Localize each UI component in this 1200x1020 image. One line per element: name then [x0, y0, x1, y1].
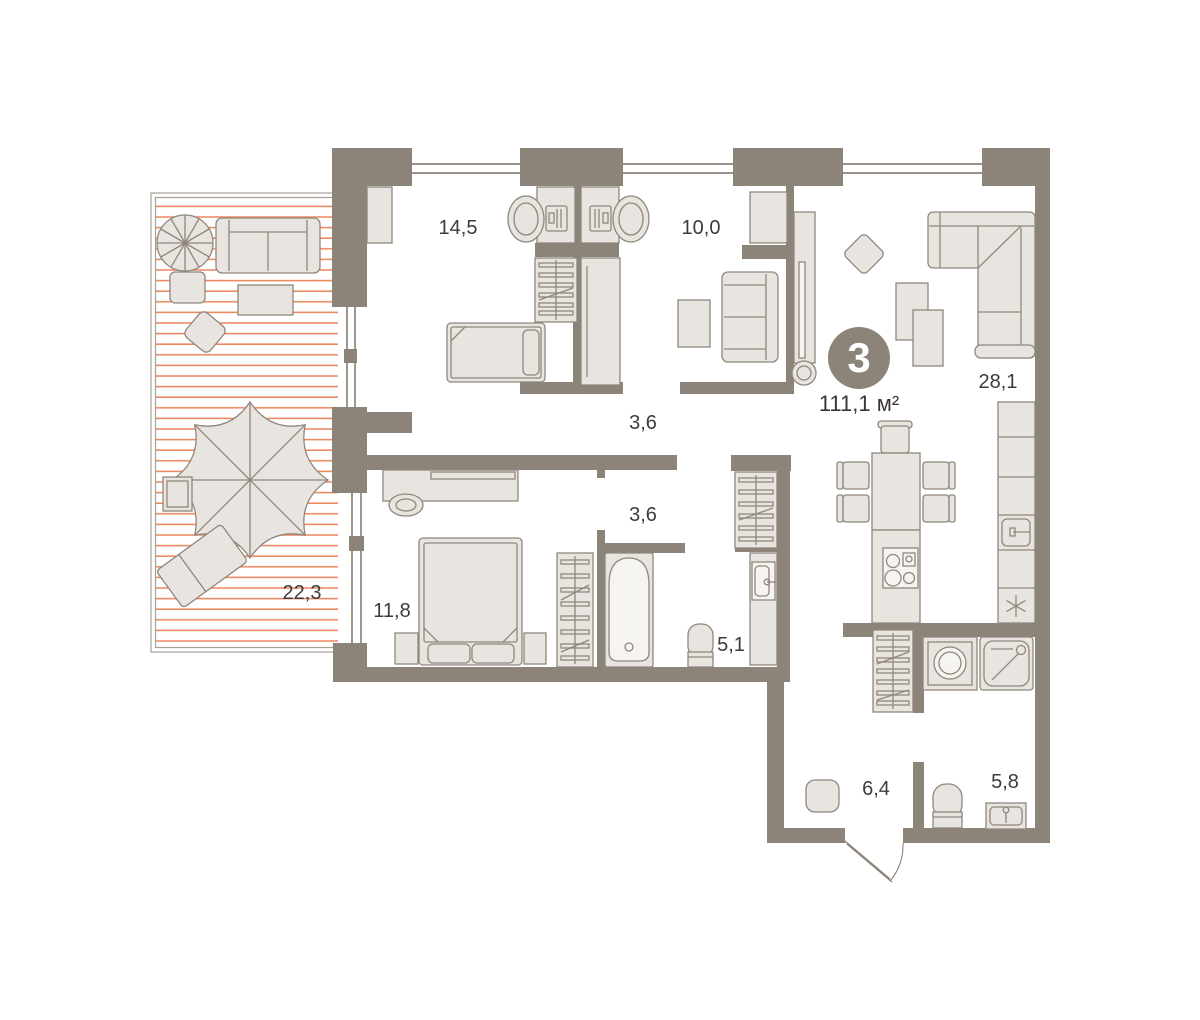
rooms-count-value: 3	[847, 334, 870, 381]
washbasin-icon	[750, 553, 777, 665]
washing-machine-icon	[923, 637, 977, 690]
window-terrace-upper	[344, 307, 357, 407]
rooms-count-badge: 3	[828, 327, 890, 389]
toilet-icon	[688, 624, 713, 667]
room-area-label: 22,3	[283, 582, 322, 604]
office-chair-left-icon	[508, 196, 544, 242]
kitchen-island-icon	[872, 530, 920, 623]
room-area-label: 3,6	[629, 412, 657, 434]
pouf-icon	[806, 780, 839, 812]
single-bed-icon	[447, 323, 545, 382]
dining-set-icon	[837, 421, 955, 530]
tv-icon	[799, 262, 805, 358]
wardrobe-icon	[557, 553, 593, 667]
coffee-table-icon	[913, 310, 943, 366]
terrace-stool-icon	[170, 272, 205, 303]
corner-sofa-icon	[928, 212, 1035, 358]
closet-icon	[367, 187, 392, 243]
round-table-icon	[157, 215, 213, 271]
window-top-2	[623, 161, 733, 175]
living-kitchen	[837, 212, 1035, 623]
bathtub-icon	[605, 553, 653, 667]
nightstand-icon	[524, 633, 546, 664]
window-top-1	[412, 161, 520, 175]
parasol-icon	[172, 402, 328, 558]
room-area-label: 5,1	[717, 634, 745, 656]
entrance-door	[845, 841, 903, 882]
sofa-icon	[722, 272, 778, 362]
side-table-icon	[678, 300, 710, 347]
shower-icon	[980, 637, 1033, 690]
double-bed-icon	[419, 538, 522, 665]
total-area-label: 111,1 м²	[819, 391, 899, 416]
terrace-coffee-table-icon	[238, 285, 293, 315]
tv-console-icon	[794, 212, 815, 363]
wardrobe-icon	[873, 630, 913, 712]
bathroom	[605, 553, 777, 667]
room-area-label: 5,8	[991, 771, 1019, 793]
floor-cushion-icon	[843, 233, 885, 275]
toilet-icon	[933, 784, 962, 828]
terrace-sofa-icon	[216, 218, 320, 273]
office-chair-right-icon	[613, 196, 649, 242]
window-terrace-lower	[349, 493, 364, 643]
window-top-3	[843, 161, 982, 175]
wardrobe-icon	[535, 258, 577, 322]
bedroom-third	[383, 470, 593, 667]
floor-lamp-icon	[792, 361, 816, 385]
room-area-label: 6,4	[862, 778, 890, 800]
sink-icon	[986, 803, 1026, 829]
dining-table-icon	[872, 453, 920, 530]
floor-plan: 14,5 10,0 28,1 3,6 3,6 11,8 22,3 5,1 6,4…	[0, 0, 1200, 1020]
room-area-label: 3,6	[629, 504, 657, 526]
room-area-label: 10,0	[682, 217, 721, 239]
terrace-side-table-icon	[163, 477, 192, 511]
chair-icon	[389, 494, 423, 516]
nightstand-icon	[395, 633, 418, 664]
hall-wardrobe-icon	[735, 472, 777, 548]
laundry-niche	[873, 630, 1033, 712]
kitchen-counter-icon	[998, 402, 1035, 623]
room-area-label: 11,8	[373, 600, 410, 622]
floor-plan-svg: 14,5 10,0 28,1 3,6 3,6 11,8 22,3 5,1 6,4…	[0, 0, 1200, 1020]
closet-icon	[750, 192, 787, 243]
room-area-label: 28,1	[979, 371, 1018, 393]
sliding-wardrobe-icon	[581, 258, 620, 385]
room-area-label: 14,5	[439, 217, 478, 239]
